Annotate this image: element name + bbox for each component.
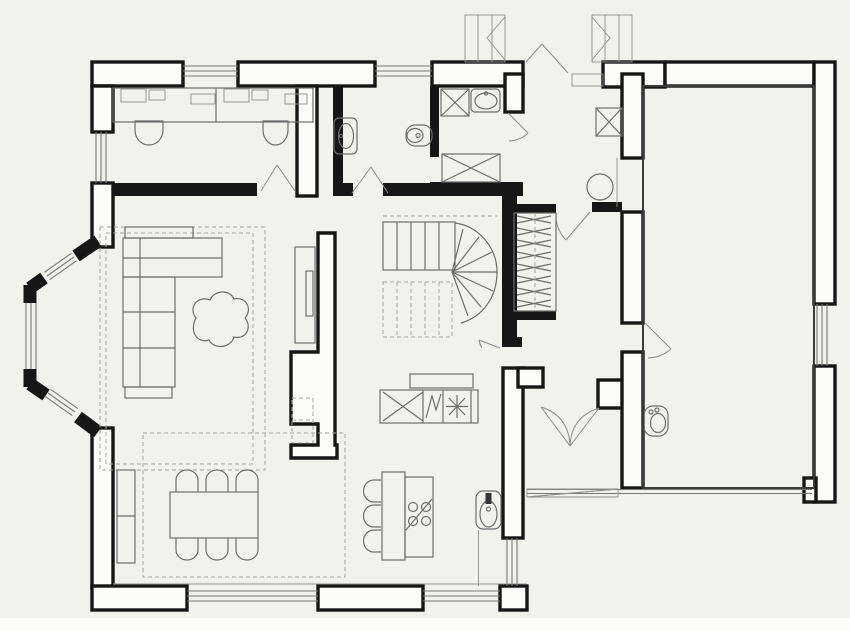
garage-access-door (645, 323, 671, 358)
washing-machine (441, 89, 469, 116)
porch-step-right (592, 15, 632, 62)
exterior-walls (92, 62, 835, 610)
bay-window-light-west (26, 303, 36, 369)
dining-chairs-top (176, 470, 258, 492)
wc-door (352, 167, 388, 193)
north-window-wc (375, 66, 432, 76)
east-window-kitchen (507, 538, 517, 586)
garage (643, 86, 814, 488)
north-window-office-left (183, 66, 238, 76)
office-door (261, 165, 295, 191)
bath-washbasin (471, 89, 500, 112)
staircase (383, 216, 497, 337)
floor-plan-canvas (0, 0, 850, 631)
stair-door (479, 340, 500, 348)
bay-window-light-north (44, 253, 76, 279)
extractor-hood (410, 374, 473, 388)
bathroom (441, 89, 500, 182)
toilet-rear (644, 406, 668, 436)
page-margin (0, 618, 850, 631)
blob-coffee-table (193, 292, 248, 347)
wc-rear (644, 406, 668, 436)
closet-rail-zigzag (517, 216, 551, 307)
cooktop-four-burners (406, 499, 432, 530)
wc-top (334, 118, 432, 154)
bay-window-light-south (45, 389, 77, 415)
hall-corridor-door (556, 212, 590, 240)
winder-fan (452, 223, 497, 323)
dining-table (170, 492, 258, 538)
south-window-dining (187, 591, 318, 601)
bar-stools (364, 480, 382, 552)
bathroom-door (508, 113, 528, 141)
living-stair-wall (291, 233, 337, 458)
kitchen (364, 374, 502, 586)
windows (96, 66, 827, 601)
bay-window (26, 241, 98, 432)
double-desk (113, 88, 313, 122)
rear-double-doors (541, 407, 599, 446)
appliance-zigzag (426, 394, 441, 418)
lower-flight-dashed (383, 282, 452, 337)
toilet (406, 125, 432, 146)
task-chair (263, 121, 288, 145)
entry-threshold (572, 74, 603, 86)
south-window-kitchen (423, 591, 500, 601)
garage-inner-outline (643, 86, 814, 488)
porch-step-left (465, 15, 505, 62)
appliance-x (383, 392, 423, 421)
dining-chairs-bottom (176, 538, 258, 560)
office (113, 88, 313, 145)
kitchen-sink (476, 491, 501, 529)
dining-area (117, 470, 258, 563)
desk-equipment (121, 89, 307, 104)
entry-double-door (526, 44, 568, 73)
coat-closet (514, 213, 556, 311)
east-window-garage (817, 304, 827, 366)
sideboard (117, 470, 135, 563)
task-chair (135, 121, 163, 145)
round-table (587, 174, 613, 200)
tv-unit (295, 247, 315, 343)
corner-sofa (123, 227, 222, 398)
appliance-asterisk (446, 395, 468, 418)
storage-cabinet-x (596, 108, 622, 136)
shower-cabinet (442, 154, 500, 182)
west-window-office (96, 132, 106, 183)
